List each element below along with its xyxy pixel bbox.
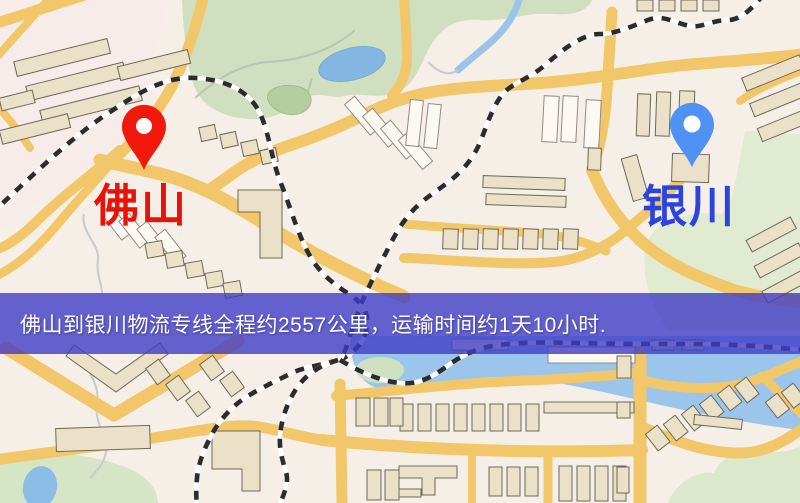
destination-label: 银川 (642, 181, 736, 232)
route-info-text: 佛山到银川物流专线全程约2557公里，运输时间约1天10小时. (20, 309, 606, 339)
route-map-image: 佛山 银川 佛山到银川物流专线全程约2557公里，运输时间约1天10小时. (0, 0, 800, 503)
origin-pin: 佛山 (93, 105, 188, 231)
destination-pin-icon (670, 103, 714, 167)
route-info-banner: 佛山到银川物流专线全程约2557公里，运输时间约1天10小时. (0, 293, 800, 354)
markers-overlay: 佛山 银川 (0, 0, 800, 503)
origin-pin-hole (136, 118, 152, 134)
origin-label: 佛山 (93, 180, 188, 231)
origin-pin-icon (122, 105, 166, 170)
destination-pin: 银川 (642, 103, 736, 232)
destination-pin-hole (684, 116, 701, 133)
